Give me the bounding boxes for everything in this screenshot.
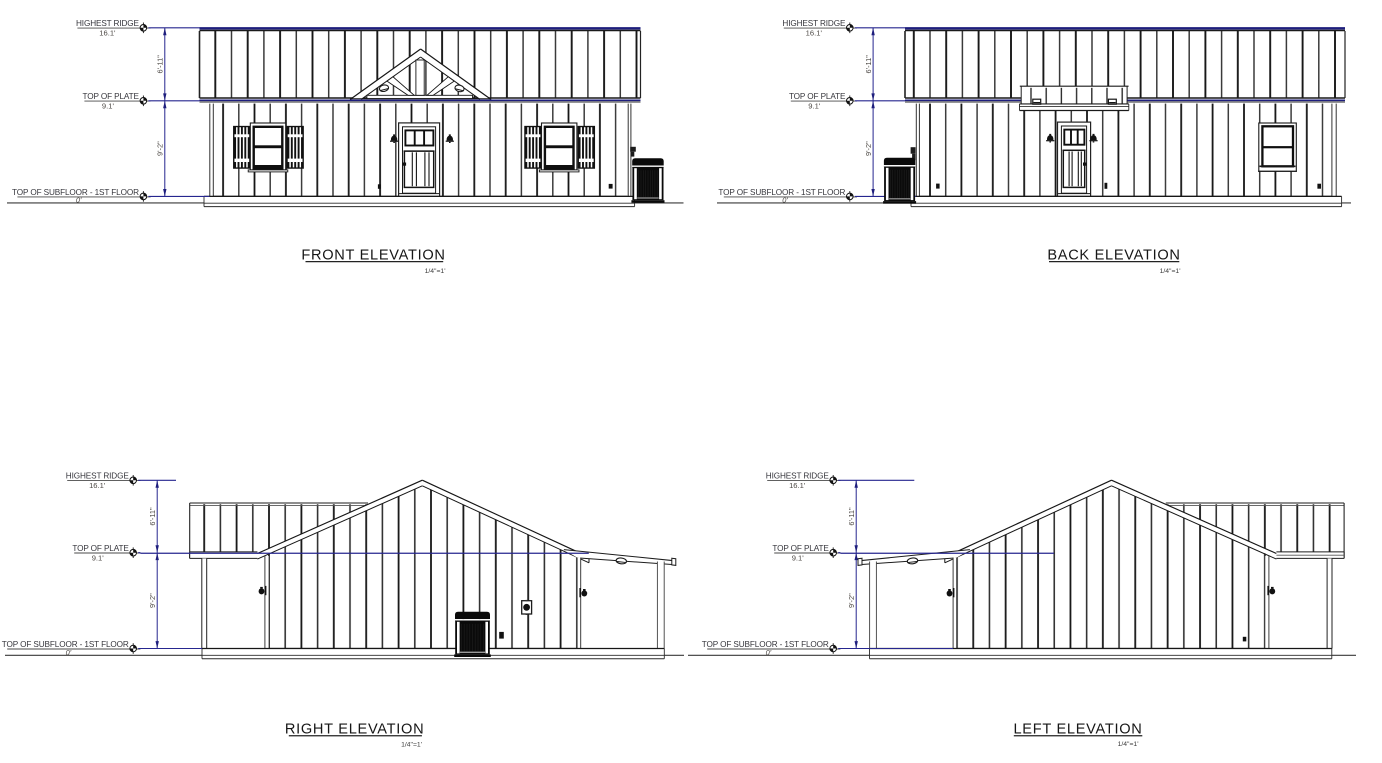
svg-text:HIGHEST RIDGE: HIGHEST RIDGE bbox=[76, 19, 140, 28]
svg-text:1/4"=1': 1/4"=1' bbox=[1160, 268, 1181, 275]
svg-text:0': 0' bbox=[782, 196, 788, 205]
svg-text:16.1': 16.1' bbox=[89, 481, 106, 490]
svg-text:6'-11": 6'-11" bbox=[156, 55, 165, 74]
svg-text:9.1': 9.1' bbox=[808, 102, 821, 111]
svg-text:0': 0' bbox=[66, 648, 72, 657]
svg-text:6'-11": 6'-11" bbox=[148, 507, 157, 526]
svg-text:1/4"=1': 1/4"=1' bbox=[401, 742, 422, 749]
svg-text:TOP OF PLATE: TOP OF PLATE bbox=[72, 544, 129, 553]
svg-text:TOP OF PLATE: TOP OF PLATE bbox=[83, 92, 140, 101]
svg-text:BACK ELEVATION: BACK ELEVATION bbox=[1047, 247, 1180, 263]
svg-text:RIGHT ELEVATION: RIGHT ELEVATION bbox=[285, 722, 424, 738]
svg-text:16.1': 16.1' bbox=[99, 29, 116, 38]
svg-text:9'-2": 9'-2" bbox=[156, 141, 165, 156]
svg-text:9.1': 9.1' bbox=[92, 554, 105, 563]
svg-text:9.1': 9.1' bbox=[102, 102, 115, 111]
svg-text:FRONT ELEVATION: FRONT ELEVATION bbox=[301, 247, 445, 263]
svg-text:LEFT ELEVATION: LEFT ELEVATION bbox=[1013, 722, 1142, 738]
svg-text:9'-2": 9'-2" bbox=[847, 593, 856, 608]
svg-text:9'-2": 9'-2" bbox=[148, 593, 157, 608]
svg-text:9'-2": 9'-2" bbox=[864, 141, 873, 156]
svg-text:0': 0' bbox=[766, 648, 772, 657]
svg-text:9.1': 9.1' bbox=[792, 554, 805, 563]
svg-text:HIGHEST RIDGE: HIGHEST RIDGE bbox=[782, 19, 846, 28]
svg-text:1/4"=1': 1/4"=1' bbox=[1118, 741, 1139, 748]
svg-text:16.1': 16.1' bbox=[806, 29, 823, 38]
svg-text:6'-11": 6'-11" bbox=[847, 507, 856, 526]
svg-text:TOP OF PLATE: TOP OF PLATE bbox=[789, 92, 846, 101]
svg-text:0': 0' bbox=[76, 196, 82, 205]
svg-text:TOP OF PLATE: TOP OF PLATE bbox=[772, 544, 829, 553]
svg-text:HIGHEST RIDGE: HIGHEST RIDGE bbox=[66, 472, 130, 481]
svg-text:1/4"=1': 1/4"=1' bbox=[425, 268, 446, 275]
svg-text:6'-11": 6'-11" bbox=[864, 55, 873, 74]
svg-text:16.1': 16.1' bbox=[789, 481, 806, 490]
svg-text:HIGHEST RIDGE: HIGHEST RIDGE bbox=[766, 472, 830, 481]
